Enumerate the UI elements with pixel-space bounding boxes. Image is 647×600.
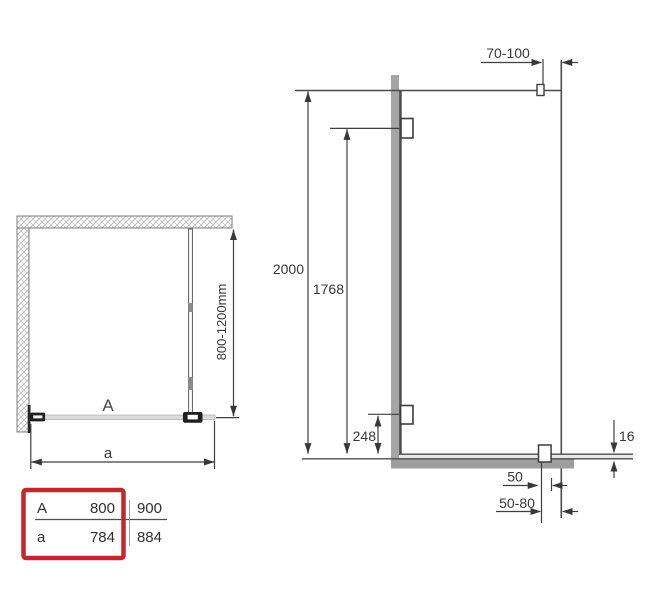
shower-screen-drawing: A 800-1200mm a bbox=[0, 0, 647, 600]
top-offset-label: 70-100 bbox=[486, 45, 530, 61]
table-row1-label: A bbox=[37, 500, 47, 517]
table-row2-value1: 784 bbox=[90, 529, 115, 546]
table-row1-value1: 800 bbox=[90, 500, 115, 517]
dim-panel-width bbox=[31, 421, 215, 469]
bottom-offset-label: 50-80 bbox=[499, 495, 535, 511]
table-row2-label: a bbox=[37, 529, 46, 546]
plan-top-wall bbox=[17, 216, 232, 228]
elevation-view: 2000 1768 248 70-100 16 bbox=[273, 45, 635, 523]
support-bar-range-label: 800-1200mm bbox=[214, 284, 229, 361]
plan-view: A 800-1200mm a bbox=[17, 216, 239, 469]
plan-glass-label: A bbox=[102, 396, 114, 415]
bottom-glass-bracket bbox=[539, 445, 552, 462]
support-bar-top-bracket bbox=[537, 85, 544, 96]
bracket-width-label: 50 bbox=[507, 469, 523, 485]
plan-wall-profile bbox=[28, 405, 31, 433]
size-table: A 800 900 a 784 884 bbox=[24, 490, 168, 558]
plan-width-label: a bbox=[104, 445, 113, 462]
plan-support-bar-joint-lower bbox=[188, 377, 192, 390]
plan-wall-bracket-slot bbox=[33, 415, 42, 418]
plan-support-bar-foot-slot bbox=[188, 415, 198, 420]
upper-clamp-height-label: 1768 bbox=[313, 281, 344, 297]
elevation-bottom-rail bbox=[399, 454, 633, 458]
plan-side-wall bbox=[17, 228, 29, 432]
upper-wall-clamp bbox=[401, 119, 413, 139]
elevation-wall-profile bbox=[391, 75, 399, 468]
overall-height-label: 2000 bbox=[273, 261, 304, 277]
lower-wall-clamp bbox=[401, 406, 413, 425]
plan-support-bar-joint-upper bbox=[188, 303, 192, 312]
table-row2-value2: 884 bbox=[137, 529, 162, 546]
table-row1-value2: 900 bbox=[137, 500, 162, 517]
technical-drawing-page: A 800-1200mm a bbox=[0, 0, 647, 600]
lower-clamp-offset-label: 248 bbox=[353, 428, 377, 444]
rail-thickness-label: 16 bbox=[619, 428, 635, 444]
dim-top-offset bbox=[481, 59, 578, 85]
